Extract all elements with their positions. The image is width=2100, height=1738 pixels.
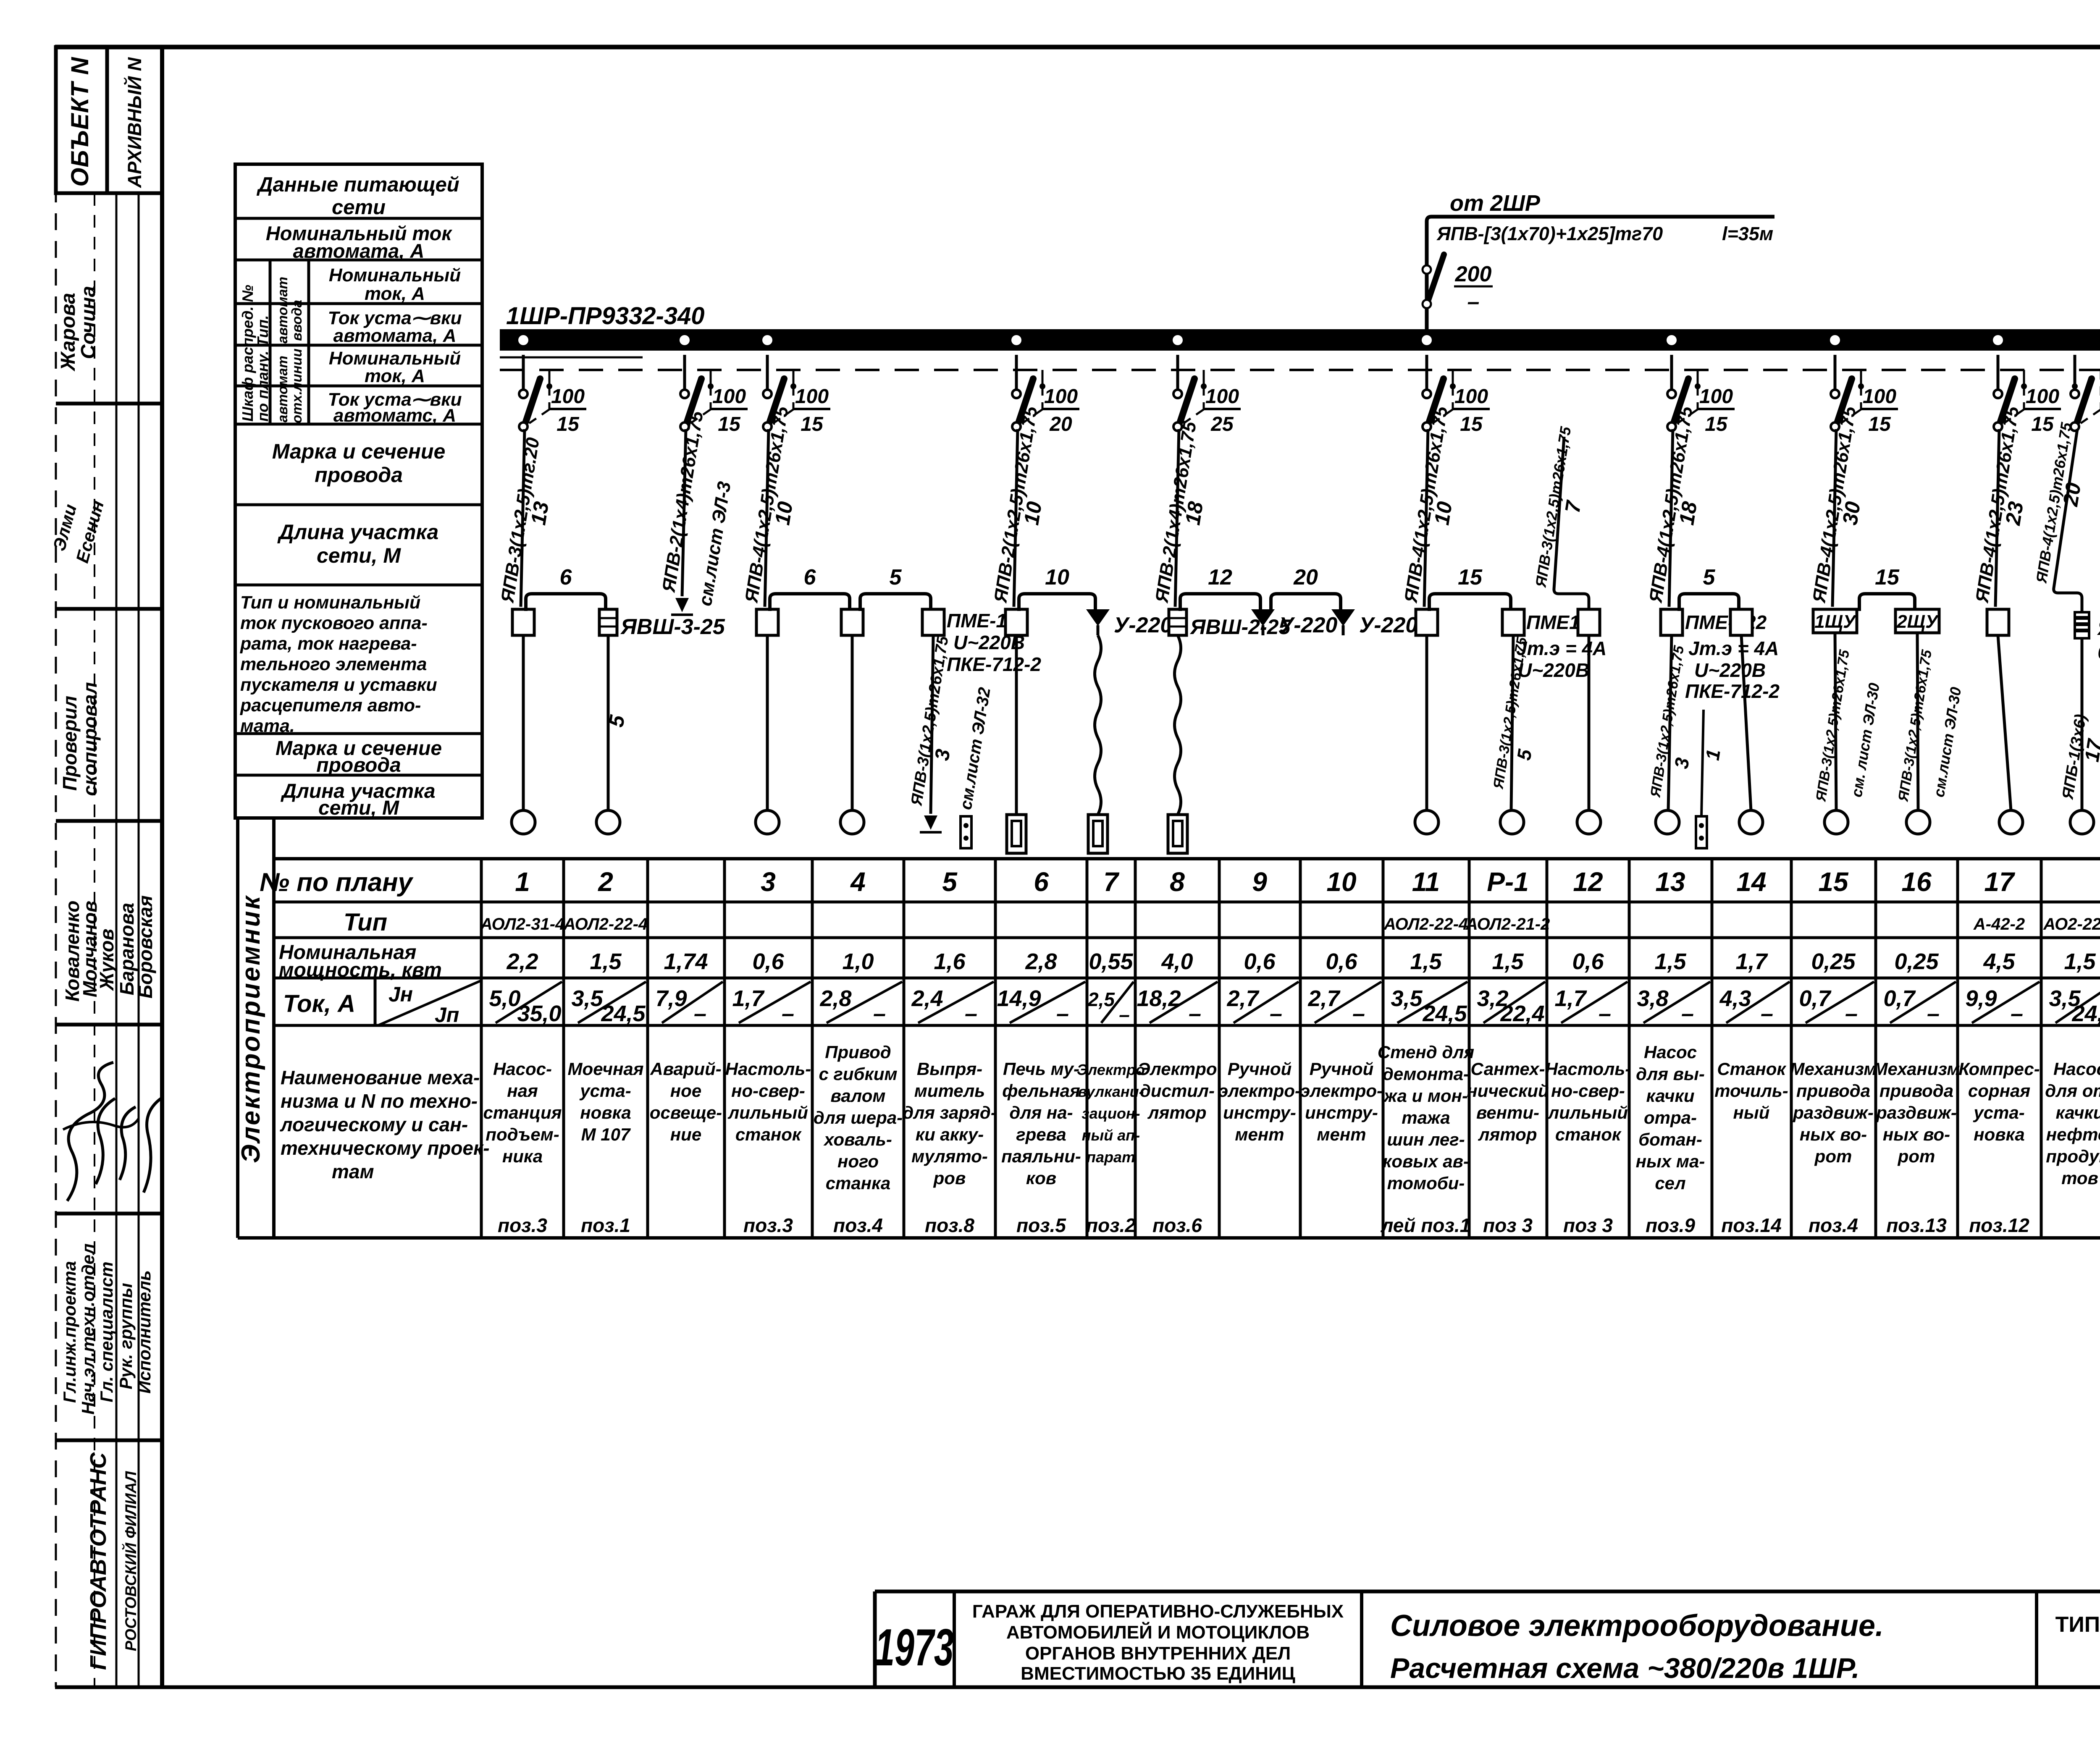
svg-text:35,0: 35,0 <box>517 1001 561 1026</box>
svg-text:Наименование меха-: Наименование меха- <box>281 1067 480 1088</box>
svg-text:валом: валом <box>831 1086 886 1106</box>
svg-text:Механизм: Механизм <box>1790 1059 1877 1079</box>
svg-text:мент: мент <box>1317 1125 1366 1144</box>
svg-text:0,6: 0,6 <box>1244 949 1276 974</box>
svg-text:ховаль-: ховаль- <box>823 1130 892 1149</box>
svg-text:4,3: 4,3 <box>1719 986 1751 1011</box>
svg-text:1ШР-ПР9332-340: 1ШР-ПР9332-340 <box>506 302 705 330</box>
svg-text:тов: тов <box>2061 1168 2098 1188</box>
svg-text:–: – <box>1056 1001 1069 1026</box>
svg-text:Насос: Насос <box>2053 1059 2100 1079</box>
svg-text:U~220В: U~220В <box>1518 659 1589 681</box>
svg-text:2,8: 2,8 <box>819 986 851 1011</box>
svg-text:24,5: 24,5 <box>1422 1001 1467 1026</box>
svg-text:техническому проек-: техническому проек- <box>281 1137 490 1159</box>
svg-text:20: 20 <box>1049 413 1072 435</box>
svg-text:9,9: 9,9 <box>1965 986 1997 1011</box>
svg-text:–: – <box>965 1001 977 1026</box>
svg-text:Гл. специалист: Гл. специалист <box>97 1261 116 1402</box>
svg-text:автомат: автомат <box>275 277 290 343</box>
svg-text:ПМЕ-122: ПМЕ-122 <box>1685 611 1767 633</box>
svg-text:–: – <box>1599 1001 1611 1026</box>
svg-text:Расчетная схема ~380/220в 1ШР: Расчетная схема ~380/220в 1ШР. <box>1390 1652 1860 1684</box>
svg-text:ЯВШ-2-25: ЯВШ-2-25 <box>1189 615 1291 639</box>
svg-text:6: 6 <box>560 565 572 590</box>
svg-text:ние: ние <box>670 1125 701 1144</box>
svg-text:Сантех-: Сантех- <box>1470 1059 1545 1079</box>
svg-text:митель: митель <box>914 1081 985 1101</box>
svg-text:ток пускового аппа-: ток пускового аппа- <box>240 613 428 633</box>
svg-text:освеще-: освеще- <box>650 1103 722 1122</box>
svg-text:Ток, А: Ток, А <box>283 990 355 1017</box>
svg-text:сети: сети <box>332 196 386 219</box>
svg-text:15: 15 <box>718 413 741 435</box>
svg-text:рот: рот <box>1814 1146 1852 1166</box>
svg-text:АОЛ2-31-4: АОЛ2-31-4 <box>480 915 565 933</box>
svg-text:ПКЕ-712-2: ПКЕ-712-2 <box>947 653 1041 675</box>
svg-text:мент: мент <box>1235 1125 1284 1144</box>
svg-text:томоби-: томоби- <box>1387 1173 1465 1193</box>
svg-text:15: 15 <box>1818 867 1849 897</box>
svg-text:ных во-: ных во- <box>1883 1125 1950 1144</box>
svg-text:Боровская: Боровская <box>134 895 156 999</box>
svg-text:–: – <box>1352 1001 1365 1026</box>
svg-text:Нач.эл.техн.отдел: Нач.эл.техн.отдел <box>78 1243 98 1415</box>
svg-text:для вы-: для вы- <box>1636 1064 1705 1084</box>
svg-text:рата, ток нагрева-: рата, ток нагрева- <box>240 634 417 654</box>
svg-text:ЯПВ-[3(1х70)+1х25]тг70: ЯПВ-[3(1х70)+1х25]тг70 <box>1436 223 1663 244</box>
svg-text:сорная: сорная <box>1968 1081 2030 1101</box>
svg-text:–: – <box>1189 1001 1201 1026</box>
svg-text:по плану. Тип.: по плану. Тип. <box>254 315 271 422</box>
svg-text:тажа: тажа <box>1402 1108 1450 1127</box>
svg-text:1,0: 1,0 <box>842 949 874 974</box>
svg-text:рот: рот <box>1898 1146 1935 1166</box>
svg-text:Стенд для: Стенд для <box>1378 1042 1474 1062</box>
svg-text:30: 30 <box>1838 500 1865 527</box>
svg-text:18: 18 <box>1675 500 1701 527</box>
svg-text:100: 100 <box>1044 385 1078 408</box>
svg-text:13: 13 <box>1655 867 1685 897</box>
svg-text:станок: станок <box>735 1125 802 1144</box>
svg-text:инстру-: инстру- <box>1223 1103 1296 1122</box>
svg-text:лятор: лятор <box>1478 1125 1537 1144</box>
svg-text:15: 15 <box>2031 413 2054 435</box>
svg-text:автомат: автомат <box>275 356 290 422</box>
svg-text:0,25: 0,25 <box>1894 949 1939 974</box>
svg-text:от 2ШР: от 2ШР <box>1450 191 1541 216</box>
svg-text:уста-: уста- <box>1973 1103 2024 1122</box>
svg-text:поз 3: поз 3 <box>1483 1214 1533 1236</box>
svg-text:нефте-: нефте- <box>2046 1125 2100 1144</box>
svg-text:6: 6 <box>804 565 816 590</box>
svg-text:М 107: М 107 <box>581 1125 631 1144</box>
svg-text:25: 25 <box>1210 413 1234 435</box>
svg-text:дистил-: дистил- <box>1140 1081 1215 1101</box>
svg-text:поз 3: поз 3 <box>1563 1214 1613 1236</box>
svg-text:Настоль-: Настоль- <box>725 1059 811 1079</box>
svg-text:привода: привода <box>1879 1081 1953 1101</box>
svg-text:точиль-: точиль- <box>1714 1081 1788 1101</box>
svg-text:лятор: лятор <box>1147 1103 1207 1122</box>
svg-text:4,5: 4,5 <box>1983 949 2015 974</box>
svg-text:Марка и сечение: Марка и сечение <box>272 440 446 463</box>
svg-text:РОСТОВСКИЙ ФИЛИАЛ: РОСТОВСКИЙ ФИЛИАЛ <box>122 1471 139 1651</box>
svg-text:№ по плану: № по плану <box>260 868 414 897</box>
svg-text:отх.линии: отх.линии <box>289 349 304 423</box>
svg-text:14: 14 <box>1736 867 1766 897</box>
svg-text:Јт.э = 4А: Јт.э = 4А <box>1688 637 1779 659</box>
svg-text:ОРГАНОВ ВНУТРЕННИХ ДЕЛ: ОРГАНОВ ВНУТРЕННИХ ДЕЛ <box>1025 1643 1291 1664</box>
svg-text:жа и мон-: жа и мон- <box>1383 1086 1468 1106</box>
svg-text:4,0: 4,0 <box>1161 949 1193 974</box>
svg-text:провода: провода <box>315 463 403 487</box>
svg-text:сети, М: сети, М <box>318 797 399 819</box>
svg-text:но-свер-: но-свер- <box>731 1081 805 1101</box>
svg-text:станок: станок <box>1555 1125 1622 1144</box>
svg-text:Ручной: Ручной <box>1228 1059 1292 1079</box>
svg-text:ВМЕСТИМОСТЬЮ 35 ЕДИНИЦ: ВМЕСТИМОСТЬЮ 35 ЕДИНИЦ <box>1021 1663 1295 1684</box>
svg-text:Длина участка: Длина участка <box>277 520 438 544</box>
svg-text:1: 1 <box>515 867 530 897</box>
svg-text:15: 15 <box>1705 413 1728 435</box>
svg-text:Моечная: Моечная <box>568 1059 644 1079</box>
svg-text:100: 100 <box>551 385 585 408</box>
svg-text:0,7: 0,7 <box>1799 986 1832 1011</box>
svg-text:2,7: 2,7 <box>1226 986 1260 1011</box>
svg-text:15: 15 <box>556 413 580 435</box>
svg-text:0,6: 0,6 <box>1326 949 1357 974</box>
svg-text:станка: станка <box>826 1173 891 1193</box>
svg-text:Электро: Электро <box>1137 1059 1217 1079</box>
svg-text:сел: сел <box>1655 1173 1685 1193</box>
svg-text:ковых ав-: ковых ав- <box>1383 1151 1469 1171</box>
svg-text:Жарова: Жарова <box>57 293 79 372</box>
svg-text:18: 18 <box>1181 500 1207 527</box>
svg-text:АО2-22-4: АО2-22-4 <box>2043 915 2100 933</box>
svg-text:16: 16 <box>1901 867 1932 897</box>
svg-text:3,5: 3,5 <box>1391 986 1423 1011</box>
svg-text:ЯВШ-3-25: ЯВШ-3-25 <box>620 615 725 639</box>
svg-text:поз.13: поз.13 <box>1886 1214 1947 1236</box>
svg-text:поз.9: поз.9 <box>1646 1214 1695 1236</box>
svg-text:Насос-: Насос- <box>493 1059 552 1079</box>
svg-text:Жуков: Жуков <box>96 929 118 991</box>
svg-text:ботан-: ботан- <box>1638 1130 1702 1149</box>
svg-text:1,7: 1,7 <box>732 986 765 1011</box>
svg-text:15: 15 <box>1868 413 1891 435</box>
svg-text:2,8: 2,8 <box>1025 949 1057 974</box>
svg-text:–: – <box>694 1001 706 1026</box>
svg-text:тельного элемента: тельного элемента <box>240 654 427 674</box>
svg-text:1,7: 1,7 <box>1554 986 1587 1011</box>
svg-text:100: 100 <box>795 385 829 408</box>
svg-text:2ЩУ: 2ЩУ <box>1896 611 1939 632</box>
svg-text:1973: 1973 <box>875 1619 954 1677</box>
svg-text:АВТОМОБИЛЕЙ И МОТОЦИКЛОВ: АВТОМОБИЛЕЙ И МОТОЦИКЛОВ <box>1006 1621 1310 1643</box>
svg-text:логическому и сан-: логическому и сан- <box>280 1114 468 1135</box>
svg-text:У-220: У-220 <box>1279 613 1337 637</box>
svg-text:уста-: уста- <box>579 1081 631 1101</box>
svg-text:10: 10 <box>1045 565 1069 590</box>
svg-text:0,55: 0,55 <box>1089 949 1133 974</box>
svg-text:фельная: фельная <box>1002 1081 1080 1101</box>
svg-text:23: 23 <box>2001 500 2028 527</box>
svg-text:ный: ный <box>1733 1103 1770 1122</box>
svg-text:Механизм: Механизм <box>1873 1059 1960 1079</box>
svg-text:1,5: 1,5 <box>2064 949 2096 974</box>
svg-text:100: 100 <box>1205 385 1239 408</box>
svg-text:зацион-: зацион- <box>1081 1105 1140 1122</box>
svg-text:инстру-: инстру- <box>1305 1103 1378 1122</box>
svg-text:там: там <box>332 1161 374 1182</box>
svg-text:ный ап-: ный ап- <box>1082 1127 1140 1144</box>
svg-text:автоматс, А: автоматс, А <box>333 405 456 426</box>
svg-text:раздвиж-: раздвиж- <box>1793 1103 1874 1122</box>
svg-text:100: 100 <box>2026 385 2059 408</box>
svg-text:лильный: лильный <box>1547 1103 1628 1122</box>
svg-text:качки: качки <box>1646 1086 1695 1106</box>
svg-text:17: 17 <box>2081 737 2100 763</box>
svg-text:поз.3: поз.3 <box>498 1214 547 1236</box>
svg-text:5,0: 5,0 <box>489 986 520 1011</box>
svg-text:Станок: Станок <box>1717 1059 1786 1079</box>
svg-text:паяльни-: паяльни- <box>1001 1146 1081 1166</box>
svg-text:раздвиж-: раздвиж- <box>1876 1103 1957 1122</box>
svg-text:поз.4: поз.4 <box>1809 1214 1858 1236</box>
svg-text:поз.12: поз.12 <box>1969 1214 2029 1236</box>
svg-text:7,9: 7,9 <box>655 986 687 1011</box>
svg-text:15: 15 <box>1458 565 1483 590</box>
svg-text:5: 5 <box>1703 565 1716 590</box>
svg-text:1,5: 1,5 <box>1654 949 1686 974</box>
svg-text:11: 11 <box>1412 867 1440 897</box>
svg-text:вулкани-: вулкани- <box>1078 1083 1144 1100</box>
svg-text:l=35м: l=35м <box>1722 223 1773 244</box>
svg-text:электро-: электро- <box>1300 1081 1383 1101</box>
svg-text:0,25: 0,25 <box>1811 949 1856 974</box>
svg-text:станция: станция <box>483 1103 562 1122</box>
svg-text:13: 13 <box>526 500 553 527</box>
svg-text:14,9: 14,9 <box>997 986 1041 1011</box>
svg-text:ЯРВ-: ЯРВ- <box>2097 616 2100 640</box>
svg-text:продук-: продук- <box>2046 1146 2100 1166</box>
svg-text:ток, А: ток, А <box>365 366 425 386</box>
svg-text:низма и N по техно-: низма и N по техно- <box>281 1090 478 1112</box>
svg-text:поз.1: поз.1 <box>581 1214 630 1236</box>
svg-text:Силовое электрооборудование.: Силовое электрооборудование. <box>1390 1609 1884 1643</box>
svg-text:Шкаф распред. №: Шкаф распред. № <box>239 285 256 422</box>
svg-text:3,8: 3,8 <box>1637 986 1668 1011</box>
svg-text:ная: ная <box>507 1081 538 1101</box>
svg-text:ток, А: ток, А <box>365 283 425 304</box>
svg-text:12: 12 <box>1573 867 1603 897</box>
svg-text:подъем-: подъем- <box>486 1125 559 1144</box>
svg-text:Јн: Јн <box>388 983 413 1006</box>
svg-text:У-220: У-220 <box>1114 613 1172 637</box>
svg-text:15: 15 <box>1460 413 1483 435</box>
svg-text:мулято-: мулято- <box>911 1146 988 1166</box>
svg-text:лильный: лильный <box>727 1103 808 1122</box>
svg-text:U~220В: U~220В <box>1694 659 1766 681</box>
svg-text:А-42-2: А-42-2 <box>1973 915 2025 933</box>
svg-text:ПКЕ-712-2: ПКЕ-712-2 <box>1685 680 1780 702</box>
svg-text:12: 12 <box>1208 565 1232 590</box>
svg-text:9: 9 <box>1252 867 1267 897</box>
svg-text:–: – <box>1845 1001 1858 1026</box>
svg-text:Тип: Тип <box>344 909 387 936</box>
svg-text:0,7: 0,7 <box>1883 986 1916 1011</box>
svg-text:15: 15 <box>1875 565 1900 590</box>
svg-text:–: – <box>1927 1001 1940 1026</box>
svg-text:Электро: Электро <box>1077 1061 1145 1078</box>
svg-text:ТИПОВОЙ ПРОЕКТ: ТИПОВОЙ ПРОЕКТ <box>2055 1612 2100 1637</box>
svg-text:–: – <box>2011 1001 2023 1026</box>
svg-text:100: 100 <box>1863 385 1896 408</box>
svg-text:поз.5: поз.5 <box>1016 1214 1066 1236</box>
svg-text:качки: качки <box>2056 1103 2100 1122</box>
svg-text:5: 5 <box>942 867 958 897</box>
svg-text:ных во-: ных во- <box>1800 1125 1867 1144</box>
svg-text:Проверил: Проверил <box>59 696 81 791</box>
svg-text:100: 100 <box>712 385 746 408</box>
svg-text:Выпря-: Выпря- <box>917 1059 982 1079</box>
svg-text:22,4: 22,4 <box>1500 1001 1544 1026</box>
svg-text:У-220: У-220 <box>1359 613 1417 637</box>
svg-text:24,5: 24,5 <box>601 1001 646 1026</box>
svg-text:20: 20 <box>1293 565 1318 590</box>
svg-text:Сочина: Сочина <box>77 286 100 359</box>
svg-text:шин лег-: шин лег- <box>1387 1130 1465 1149</box>
svg-text:автомата, А: автомата, А <box>333 325 457 346</box>
svg-text:8: 8 <box>1170 867 1185 897</box>
svg-text:ков: ков <box>1026 1168 1056 1188</box>
svg-text:2,2: 2,2 <box>506 949 538 974</box>
svg-text:с гибким: с гибким <box>819 1064 897 1084</box>
svg-text:2,5: 2,5 <box>1087 988 1115 1010</box>
svg-text:–: – <box>1467 290 1480 314</box>
svg-text:2,4: 2,4 <box>911 986 943 1011</box>
svg-text:автомата, А: автомата, А <box>293 240 425 262</box>
svg-text:ров: ров <box>933 1168 966 1188</box>
svg-text:17: 17 <box>1984 867 2016 897</box>
svg-text:мощность, квт: мощность, квт <box>279 959 442 981</box>
svg-text:Гл.инж.проекта: Гл.инж.проекта <box>60 1261 79 1403</box>
svg-text:4: 4 <box>850 867 866 897</box>
svg-text:Компрес-: Компрес- <box>1958 1059 2040 1079</box>
svg-text:1,5: 1,5 <box>590 949 622 974</box>
svg-text:100: 100 <box>1454 385 1488 408</box>
svg-text:24,5: 24,5 <box>2071 1001 2100 1026</box>
svg-text:АРХИВНЫЙ N: АРХИВНЫЙ N <box>124 57 145 188</box>
svg-text:для заряд-: для заряд- <box>903 1103 997 1122</box>
svg-text:АОЛ2-22-4: АОЛ2-22-4 <box>1383 915 1468 933</box>
svg-text:–: – <box>873 1001 886 1026</box>
svg-text:АОЛ2-21-2: АОЛ2-21-2 <box>1465 915 1550 933</box>
svg-text:10: 10 <box>1326 867 1356 897</box>
svg-text:но-свер-: но-свер- <box>1551 1081 1625 1101</box>
svg-text:6: 6 <box>1034 867 1049 897</box>
svg-text:1,5: 1,5 <box>1410 949 1442 974</box>
svg-text:ОБЪЕКТ N: ОБЪЕКТ N <box>66 57 94 186</box>
svg-text:Рук. группы: Рук. группы <box>116 1283 136 1389</box>
svg-text:грева: грева <box>1016 1125 1066 1144</box>
svg-text:Электроприемник: Электроприемник <box>236 894 265 1163</box>
svg-text:лей поз.1: лей поз.1 <box>1381 1214 1471 1236</box>
svg-text:поз.4: поз.4 <box>833 1214 883 1236</box>
svg-text:Р-1: Р-1 <box>1487 867 1529 897</box>
svg-text:10: 10 <box>1430 500 1457 527</box>
svg-text:1ЩУ: 1ЩУ <box>1814 611 1857 632</box>
svg-text:Настоль-: Настоль- <box>1545 1059 1631 1079</box>
svg-text:10: 10 <box>770 500 797 527</box>
svg-text:15: 15 <box>801 413 824 435</box>
svg-text:0,6: 0,6 <box>752 949 784 974</box>
svg-text:20: 20 <box>2058 481 2085 508</box>
svg-text:Привод: Привод <box>825 1042 891 1062</box>
svg-text:Аварий-: Аварий- <box>650 1059 721 1079</box>
svg-text:18,2: 18,2 <box>1137 986 1181 1011</box>
svg-text:расцепителя авто-: расцепителя авто- <box>240 695 421 716</box>
svg-text:1,7: 1,7 <box>1735 949 1768 974</box>
svg-text:Јт.э = 4А: Јт.э = 4А <box>1516 637 1606 659</box>
svg-text:поз.6: поз.6 <box>1152 1214 1202 1236</box>
svg-text:ное: ное <box>670 1081 701 1101</box>
svg-text:Насос: Насос <box>1644 1042 1697 1062</box>
svg-text:для шера-: для шера- <box>814 1108 903 1127</box>
svg-text:Ручной: Ручной <box>1310 1059 1374 1079</box>
svg-text:–: – <box>1119 1004 1130 1025</box>
svg-text:поз.2: поз.2 <box>1086 1214 1136 1236</box>
svg-text:7: 7 <box>1103 867 1120 897</box>
svg-text:ГИПРОАВТОТРАНС: ГИПРОАВТОТРАНС <box>86 1452 111 1670</box>
svg-text:0,6: 0,6 <box>1572 949 1604 974</box>
svg-text:электро-: электро- <box>1218 1081 1301 1101</box>
svg-text:пускателя и уставки: пускателя и уставки <box>240 675 437 695</box>
svg-text:Печь му-: Печь му- <box>1003 1059 1079 1079</box>
svg-text:провода: провода <box>316 754 401 776</box>
svg-text:ввода: ввода <box>289 300 304 341</box>
svg-text:100: 100 <box>1699 385 1733 408</box>
svg-text:для от-: для от- <box>2045 1081 2100 1101</box>
svg-text:2: 2 <box>598 867 613 897</box>
svg-text:1,6: 1,6 <box>934 949 966 974</box>
svg-text:–: – <box>1270 1001 1282 1026</box>
svg-text:3: 3 <box>761 867 776 897</box>
svg-text:2,7: 2,7 <box>1307 986 1341 1011</box>
svg-text:отра-: отра- <box>1644 1108 1697 1127</box>
svg-text:–: – <box>1681 1001 1694 1026</box>
svg-text:ГАРАЖ ДЛЯ ОПЕРАТИВНО-СЛУЖЕБН: ГАРАЖ ДЛЯ ОПЕРАТИВНО-СЛУЖЕБНЫХ <box>972 1601 1344 1622</box>
svg-text:венти-: венти- <box>1476 1103 1539 1122</box>
svg-text:для на-: для на- <box>1009 1103 1073 1122</box>
svg-text:поз.14: поз.14 <box>1721 1214 1782 1236</box>
svg-text:нический: нический <box>1467 1081 1549 1101</box>
svg-text:6/23: 6/23 <box>2097 640 2100 664</box>
svg-text:сети, М: сети, М <box>317 544 401 567</box>
svg-text:Исполнитель: Исполнитель <box>134 1270 154 1394</box>
svg-text:Данные питающей: Данные питающей <box>256 173 459 196</box>
svg-text:10: 10 <box>1019 500 1046 527</box>
svg-text:мата.: мата. <box>240 716 295 736</box>
svg-text:5: 5 <box>890 565 902 590</box>
svg-text:Номинальный: Номинальный <box>329 265 461 286</box>
svg-text:новка: новка <box>1974 1125 2025 1144</box>
svg-text:1,74: 1,74 <box>664 949 708 974</box>
svg-text:–: – <box>1761 1001 1773 1026</box>
svg-text:1,5: 1,5 <box>1492 949 1524 974</box>
svg-text:Тип и номинальный: Тип и номинальный <box>240 592 420 613</box>
